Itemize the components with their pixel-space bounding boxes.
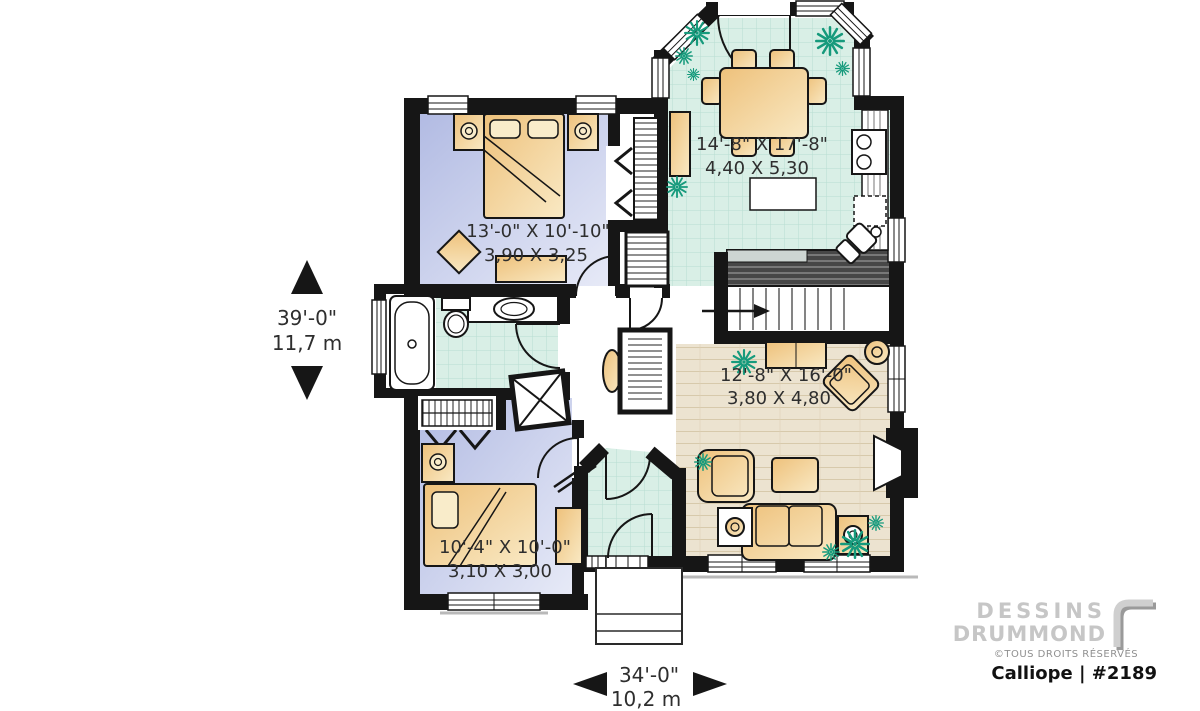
- dining-hutch: [670, 112, 690, 176]
- living-lamp-table: [865, 340, 889, 364]
- dishwasher: [854, 196, 886, 226]
- fireplace: [874, 428, 918, 498]
- pillow: [432, 492, 458, 528]
- floor-plan-page: 14'-8" X 17'-8" 4,40 X 5,30 13'-0" X 10'…: [0, 0, 1200, 711]
- bedroom2-label-metric: 3,10 X 3,00: [448, 561, 552, 582]
- living-label-metric: 3,80 X 4,80: [727, 388, 831, 409]
- front-porch: [596, 568, 682, 644]
- entry-threshold: [606, 556, 648, 568]
- arrow-right-icon: [693, 672, 727, 696]
- width-metric: 10,2 m: [611, 687, 681, 711]
- height-dimension: 39'-0" 11,7 m: [272, 260, 342, 400]
- lamp-icon: [430, 454, 446, 470]
- patio-door-opening: [718, 2, 790, 15]
- arrow-left-icon: [573, 672, 607, 696]
- bar-counter-shelf: [727, 250, 807, 262]
- brand-name-line1: DESSINS: [976, 599, 1106, 623]
- arrow-down-icon: [291, 366, 323, 400]
- bedroom2-label-imperial: 10'-4" X 10'-0": [439, 537, 571, 558]
- master-label-metric: 3,90 X 3,25: [484, 245, 588, 266]
- height-imperial: 39'-0": [277, 306, 337, 330]
- pillow: [528, 120, 558, 138]
- pantry: [626, 232, 668, 286]
- height-metric: 11,7 m: [272, 331, 342, 355]
- lamp-icon: [461, 123, 477, 139]
- branding-block: DESSINS DRUMMOND ©TOUS DROITS RÉSERVÉS C…: [953, 599, 1157, 684]
- dining-label-metric: 4,40 X 5,30: [705, 158, 809, 179]
- width-dimension: 34'-0" 10,2 m: [573, 663, 727, 711]
- bathroom-window: [372, 300, 386, 374]
- living-label-imperial: 12'-8" X 16'-0": [720, 365, 852, 386]
- faucet: [871, 227, 881, 237]
- kitchen-window: [888, 218, 905, 262]
- bay-right-window: [853, 48, 870, 96]
- dining-rug: [750, 178, 816, 210]
- living-ottoman: [772, 458, 818, 492]
- plan-id-label: Calliope | #2189: [991, 663, 1157, 684]
- pantry-door: [630, 298, 662, 330]
- entry-sidelight: [586, 556, 606, 568]
- toilet-tank: [442, 298, 470, 310]
- width-imperial: 34'-0": [619, 663, 679, 687]
- dining-table: [720, 68, 808, 138]
- master-closet-rod: [634, 118, 658, 220]
- stairs-area: [702, 250, 890, 332]
- arrow-up-icon: [291, 260, 323, 294]
- hall-closet-rod: [628, 338, 662, 404]
- lamp-icon: [575, 123, 591, 139]
- brand-name-line2: DRUMMOND: [953, 622, 1106, 646]
- drummond-door-icon: [1117, 603, 1156, 650]
- master-window-left: [428, 96, 468, 114]
- linen-closet: [511, 371, 569, 429]
- floor-plan-drawing: 14'-8" X 17'-8" 4,40 X 5,30 13'-0" X 10'…: [0, 0, 1200, 711]
- master-label-imperial: 13'-0" X 10'-10": [466, 221, 609, 242]
- dining-left-window: [652, 58, 669, 98]
- pillow: [490, 120, 520, 138]
- sink: [494, 298, 534, 320]
- staircase: [727, 286, 890, 332]
- brand-rights: ©TOUS DROITS RÉSERVÉS: [994, 647, 1138, 660]
- master-window-right: [576, 96, 616, 114]
- dining-label-imperial: 14'-8" X 17'-8": [696, 134, 828, 155]
- lamp-icon: [726, 518, 744, 536]
